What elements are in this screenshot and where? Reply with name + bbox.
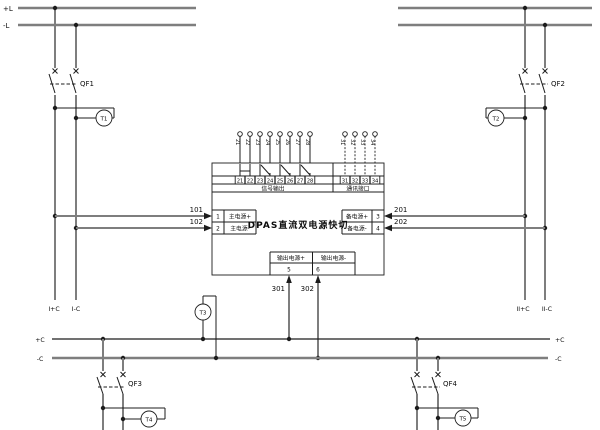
terminal-no: 26 [287,178,294,184]
bus-c-neg-left: -C [37,356,44,363]
tap-wire-102: 102 [74,218,212,231]
bus-c-pos-left: +C [35,337,45,344]
backup-neg-label: 备电源- [347,225,366,233]
signal-wire-label: 23 [254,139,260,145]
breaker-qf2-label: QF2 [551,80,565,88]
comm-terminal-strip: 31 32 33 34 [340,176,380,184]
wire-101-label: 101 [190,206,203,214]
terminal-no: 23 [257,178,264,184]
comm-section: 31 32 33 34 31 32 33 34 通讯接口 [339,132,380,193]
terminal-no: 21 [237,178,244,184]
drop-label-1pos: I+C [48,306,59,313]
relay-t5-label: T5 [459,416,467,422]
feeder-3: QF3 T4 [97,337,165,430]
drop-label-2pos: II+C [516,306,529,313]
comm-wire-labels: 31 32 33 34 [339,139,375,145]
signal-wire-label: 24 [264,139,270,145]
bus-c-pos-right: +C [555,337,565,344]
wire-201-label: 201 [394,206,407,214]
signal-wires [238,132,313,163]
terminal-no: 25 [277,178,284,184]
terminal-no: 34 [372,178,379,184]
breaker-qf1-label: QF1 [80,80,94,88]
output-neg-label: 输出电源- [321,254,346,262]
signal-section-label: 信号输出 [261,185,284,193]
relay-t4-label: T4 [145,417,153,423]
terminal-no: 31 [342,178,349,184]
signal-wire-label: 25 [274,139,280,145]
breaker-qf1: QF1 [49,69,94,94]
dc-dual-power-schematic: +L -L QF1 T1 [0,0,600,430]
bottom-bus-pair: +C -C +C -C T3 [35,296,564,363]
drop-label-2neg: II-C [542,306,552,313]
comm-wire-label: 34 [369,139,375,145]
terminal-no: 33 [362,178,369,184]
signal-wire-label: 27 [294,139,300,145]
terminal-4-no: 4 [376,227,380,233]
breaker-qf4: QF4 [411,372,458,394]
comm-wire-label: 33 [359,139,365,145]
relay-t4: T4 [101,406,165,427]
signal-output-section: 21 22 23 24 25 26 27 28 21 22 [234,132,315,193]
terminal-no: 32 [352,178,359,184]
wire-102-label: 102 [190,218,203,226]
output-wires: 301 302 [272,275,321,360]
relay-t3-label: T3 [199,310,207,316]
bus-neg-label: -L [3,22,10,30]
terminal-no: 24 [267,178,274,184]
main-pos-label: 主电源+ [229,213,251,221]
breaker-qf4-label: QF4 [443,380,458,388]
top-right-bus-pair [398,8,592,25]
feeder-2: QF2 T2 201 202 II+C II-C [384,6,565,313]
terminal-6-no: 6 [316,268,320,274]
terminal-3-no: 3 [376,215,380,221]
wire-302-label: 302 [301,285,314,293]
breaker-qf2: QF2 [519,69,565,94]
terminal-5-no: 5 [287,268,291,274]
signal-wire-label: 26 [284,139,290,145]
top-left-bus-pair: +L -L [3,5,196,30]
signal-terminal-strip: 21 22 23 24 25 26 27 28 [235,176,315,184]
relay-t5: T5 [415,406,478,426]
schematic-canvas: +L -L QF1 T1 [0,0,600,430]
bus-c-neg-right: -C [555,356,562,363]
terminal-no: 28 [307,178,314,184]
signal-wire-labels: 21 22 23 24 25 26 27 28 [234,139,310,145]
relay-t3: T3 [195,296,218,360]
breaker-qf3-label: QF3 [128,380,142,388]
relay-t1: T1 [53,106,114,126]
wire-202-label: 202 [394,218,407,226]
wire-301-label: 301 [272,285,285,293]
terminal-1-no: 1 [216,215,220,221]
device-block: 21 22 23 24 25 26 27 28 21 22 [212,132,384,275]
relay-t2-label: T2 [492,116,500,122]
signal-wire-label: 21 [234,139,240,145]
bus-pos-label: +L [3,5,13,13]
output-pos-label: 输出电源+ [277,254,305,262]
device-title: DPAS直流双电源快切 [248,219,349,231]
breaker-qf3: QF3 [97,372,142,394]
terminal-no: 22 [247,178,254,184]
terminal-no: 27 [297,178,304,184]
terminal-2-no: 2 [216,227,220,233]
backup-pos-label: 备电源+ [346,213,368,221]
signal-wire-label: 22 [244,139,250,145]
comm-wire-label: 31 [339,139,345,145]
tap-wire-202: 202 [384,218,547,231]
signal-wire-label: 28 [304,139,310,145]
relay-t1-label: T1 [100,116,108,122]
feeder-4: QF4 T5 [411,337,478,430]
comm-wire-label: 32 [349,139,355,145]
drop-label-1neg: I-C [72,306,80,313]
relay-t2: T2 [486,106,547,126]
comm-section-label: 通讯接口 [346,185,369,193]
feeder-1: QF1 T1 101 102 I+C I-C [48,6,212,313]
